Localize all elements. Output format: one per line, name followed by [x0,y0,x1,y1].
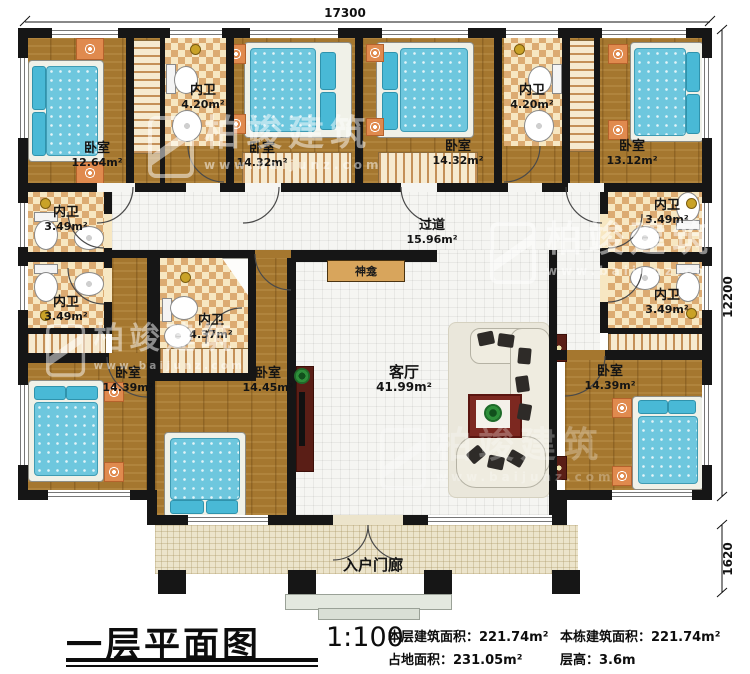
door-opening [255,250,291,258]
room-name: 内卫 [181,84,224,99]
room-area: 14.32m² [236,157,287,169]
door-opening [600,214,608,248]
window [382,28,468,38]
shrine-label: 神龛 [355,263,377,279]
room-area: 4.37m² [189,329,232,341]
room-name: 内卫 [645,199,688,214]
room-label-living: 客厅 41.99m² [376,364,432,394]
wall-segment [549,250,557,515]
bed-mattress [400,48,468,132]
pillow [32,66,46,110]
room-name: 过道 [406,219,457,234]
sink [524,110,554,142]
window [18,203,28,247]
stat-label: 本栋建筑面积： [560,630,651,645]
room-label-bath-l2: 内卫 3.49m² [44,296,87,323]
pillow [668,400,696,414]
closet [130,40,162,154]
porch-label: 入户门廊 [343,554,403,575]
pillow [34,386,66,400]
plant-icon [484,404,502,422]
wall-segment [226,36,234,183]
room-label-bath-tr: 内卫 4.20m² [510,84,553,111]
room-label-bedroom-br: 卧室 14.39m² [584,365,635,392]
sink [630,266,660,290]
faucet-icon [180,272,191,283]
sink [164,324,192,348]
wall-segment [608,252,712,262]
room-area: 41.99m² [376,381,432,394]
stat-story-height: 层高：3.6m [560,649,636,668]
pillow [206,500,238,514]
window [702,385,712,465]
pillow [382,52,398,90]
shrine-shelf: 神龛 [327,260,405,282]
room-name: 内卫 [510,84,553,99]
title-underline-thin [66,665,318,667]
pillow [686,52,700,92]
room-name: 内卫 [189,314,232,329]
window [250,28,338,38]
faucet-icon [514,44,525,55]
pillow [66,386,98,400]
pillow [638,400,668,414]
door-opening [104,214,112,248]
pillow [382,92,398,130]
room-name: 客厅 [376,364,432,381]
room-name: 内卫 [645,289,688,304]
room-label-bath-tl: 内卫 4.20m² [181,84,224,111]
window [506,28,558,38]
stat-value: 221.74m² [479,630,548,645]
door-opening [567,350,605,360]
room-area: 4.20m² [181,99,224,111]
window [170,28,222,38]
room-area: 14.39m² [102,382,153,394]
room-area: 3.49m² [44,221,87,233]
floor-plan-sheet: 神龛 [0,0,750,674]
bed-mattress [638,416,698,484]
stat-value: 3.6m [599,653,636,668]
door-opening [104,268,112,302]
nightstand [366,44,384,62]
bed-mattress [170,438,240,500]
plant-icon [294,368,310,384]
room-area: 14.45m² [242,382,293,394]
floor-corridor [112,190,600,250]
sink [74,272,104,296]
sofa-cushion [517,347,531,364]
door-opening [401,183,437,192]
nightstand [76,38,104,60]
nightstand [104,462,124,482]
wall-segment [160,36,165,183]
stat-footprint-area: 占地面积：231.05m² [388,649,522,668]
door-opening [600,268,608,302]
nightstand [608,120,628,140]
window [602,28,686,38]
wall-segment [152,373,256,381]
bed-mattress [250,48,316,132]
closet [26,332,106,355]
sink [630,226,660,250]
sofa-cushion [497,333,515,348]
dimension-top: 17300 [305,6,385,20]
title-underline [66,658,318,662]
wall-segment [18,252,112,262]
room-label-bath-r1: 内卫 3.49m² [645,199,688,226]
door-opening [109,353,147,363]
room-area: 3.49m² [44,311,87,323]
stat-label: 占地面积： [388,653,453,668]
room-area: 13.12m² [606,155,657,167]
window [702,203,712,247]
stat-label: 本层建筑面积： [388,630,479,645]
wall-segment [594,36,600,183]
pillow [320,92,336,130]
room-label-corridor: 过道 15.96m² [406,219,457,246]
room-label-bedroom-tl: 卧室 12.64m² [71,142,122,169]
room-label-bedroom-tc2: 卧室 14.32m² [432,140,483,167]
window [52,28,118,38]
room-name: 卧室 [236,142,287,157]
room-name: 内卫 [44,296,87,311]
wall-segment [248,250,256,375]
bed-mattress [34,402,98,476]
porch-pillar [288,570,316,594]
wall-segment [126,36,134,183]
window [18,58,28,138]
room-label-bedroom-bl: 卧室 14.39m² [102,367,153,394]
entrance-door-opening [333,515,403,525]
room-label-bath-l1: 内卫 3.49m² [44,206,87,233]
room-name: 卧室 [242,367,293,382]
door-opening [97,183,135,192]
porch-pillar [158,570,186,594]
nightstand [612,466,632,486]
room-area: 3.49m² [645,214,688,226]
faucet-icon [190,44,201,55]
window [612,490,692,500]
door-opening [186,183,220,192]
room-name: 卧室 [584,365,635,380]
nightstand [608,44,628,64]
stat-value: 231.05m² [453,653,522,668]
stat-label: 层高： [560,653,599,668]
room-name: 卧室 [71,142,122,157]
entry-step [318,608,420,620]
porch-pillar [424,570,452,594]
room-label-bath-center: 内卫 4.37m² [189,314,232,341]
nightstand [612,398,632,418]
room-area: 12.64m² [71,157,122,169]
pillow [320,52,336,90]
tv-icon [299,392,305,446]
sofa-cushion [515,375,530,393]
door-opening [568,183,604,192]
closet [160,348,250,375]
wall-segment [18,328,112,334]
sink [172,110,202,142]
room-label-bedroom-bc: 卧室 14.45m² [242,367,293,394]
wall-segment [562,36,570,183]
wall-segment [600,183,608,333]
room-label-bedroom-tc1: 卧室 14.32m² [236,142,287,169]
stat-building-area: 本栋建筑面积：221.74m² [560,626,720,645]
dimension-right-porch: 1620 [721,529,735,589]
room-name: 内卫 [44,206,87,221]
door-opening [245,183,281,192]
window [428,515,552,525]
wall-segment [355,36,363,183]
room-label-bedroom-tr: 卧室 13.12m² [606,140,657,167]
window [18,266,28,310]
closet [568,40,596,152]
room-area: 3.49m² [645,304,688,316]
room-name: 卧室 [606,140,657,155]
nightstand [366,118,384,136]
window [702,58,712,138]
room-area: 15.96m² [406,234,457,246]
door-opening [508,183,542,192]
dimension-right-main: 12200 [721,257,735,337]
wall-segment [608,328,712,334]
room-area: 4.20m² [510,99,553,111]
room-area: 14.32m² [432,155,483,167]
window [188,515,268,525]
room-name: 卧室 [432,140,483,155]
floor-left-hall [112,250,147,360]
closet [608,332,704,352]
wall-segment [494,36,502,183]
room-name: 卧室 [102,367,153,382]
wall-segment [164,250,255,258]
porch-pillar [552,570,580,594]
stat-value: 221.74m² [651,630,720,645]
stat-floor-area: 本层建筑面积：221.74m² [388,626,548,645]
sofa-cushion [517,403,533,421]
window [18,385,28,465]
pillow [686,94,700,134]
window [48,490,130,500]
window [702,266,712,310]
bed-mattress [634,48,686,136]
pillow [32,112,46,156]
pillow [170,500,204,514]
room-area: 14.39m² [584,380,635,392]
room-label-bath-r2: 内卫 3.49m² [645,289,688,316]
